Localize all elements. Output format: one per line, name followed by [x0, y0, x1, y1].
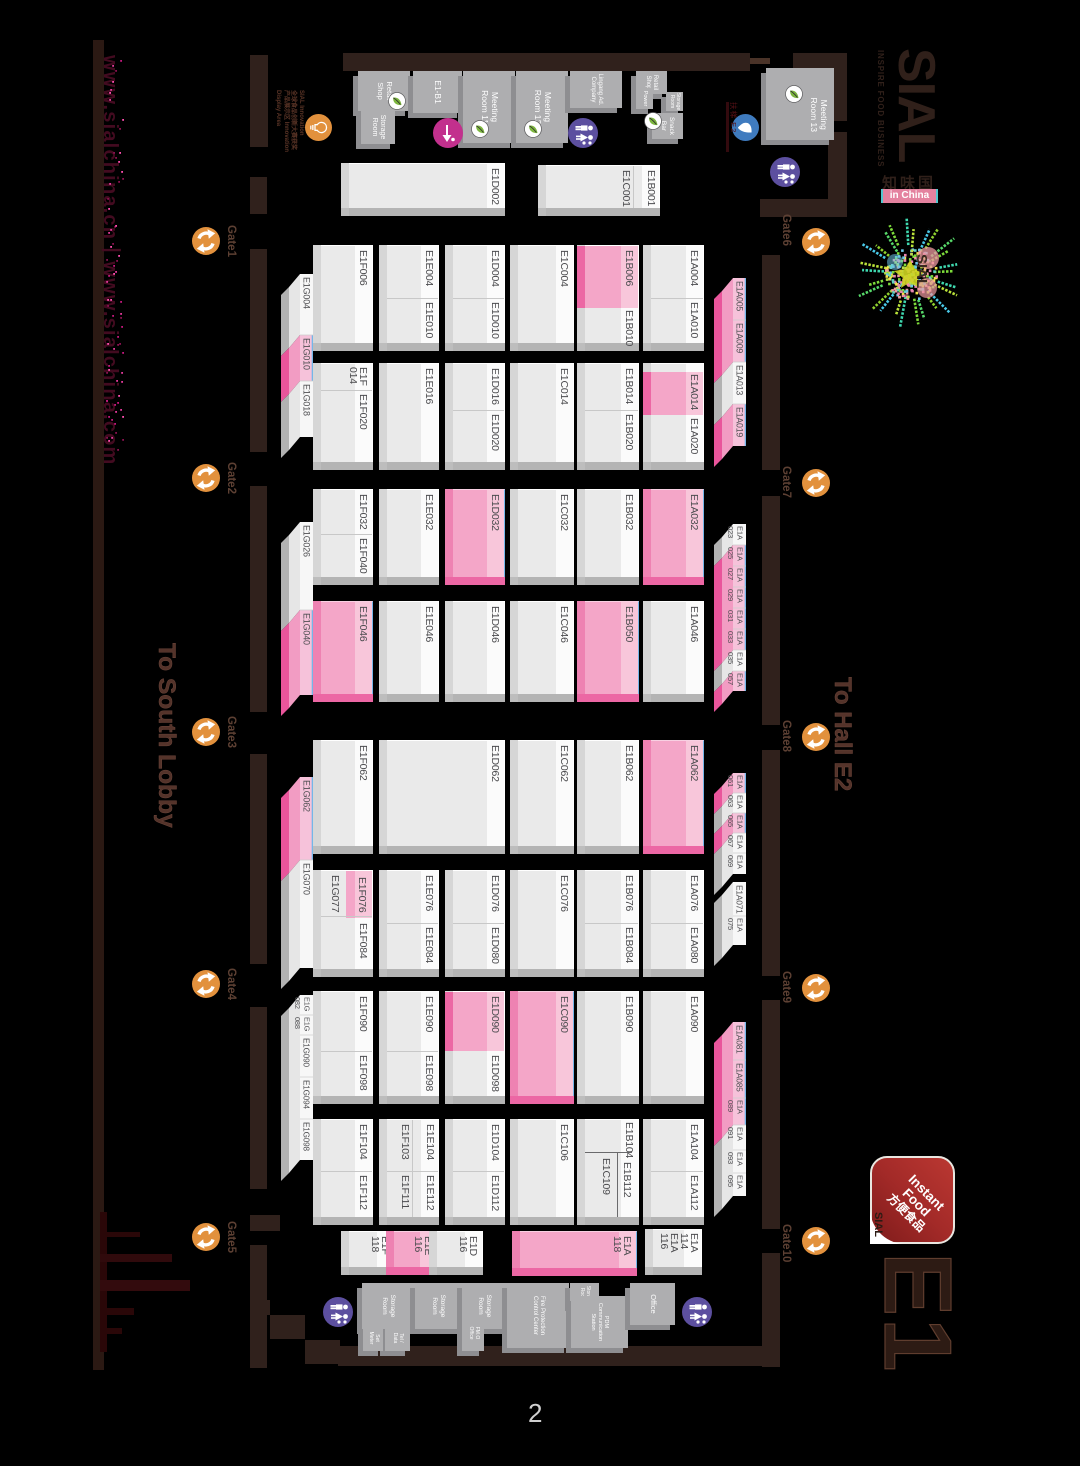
- svg-text:E1A: E1A: [736, 673, 745, 688]
- svg-text:E1A: E1A: [736, 1175, 745, 1190]
- svg-text:E1A019: E1A019: [735, 407, 745, 437]
- svg-text:029: 029: [726, 589, 735, 601]
- svg-text:E1A: E1A: [736, 815, 745, 830]
- svg-text:E1G010: E1G010: [302, 338, 312, 370]
- svg-text:E1A: E1A: [736, 568, 745, 583]
- svg-text:035: 035: [726, 652, 735, 664]
- svg-text:E1A: E1A: [736, 918, 745, 933]
- svg-text:065: 065: [726, 815, 735, 827]
- svg-text:E1A: E1A: [736, 1152, 745, 1167]
- svg-text:E1G: E1G: [303, 997, 312, 1012]
- svg-text:E1G: E1G: [303, 1017, 312, 1032]
- svg-text:E1A: E1A: [736, 631, 745, 646]
- svg-text:E1G040: E1G040: [302, 613, 312, 645]
- svg-text:E1A: E1A: [736, 775, 745, 790]
- svg-text:E1A013: E1A013: [735, 365, 745, 395]
- svg-text:E1A009: E1A009: [735, 323, 745, 353]
- svg-text:027: 027: [726, 568, 735, 580]
- svg-text:023: 023: [726, 526, 735, 538]
- svg-text:089: 089: [726, 1100, 735, 1112]
- svg-text:067: 067: [726, 835, 735, 847]
- svg-text:063: 063: [726, 795, 735, 807]
- svg-text:093: 093: [726, 1152, 735, 1164]
- svg-text:SIAL: SIAL: [872, 1212, 884, 1237]
- svg-text:091: 091: [726, 1127, 735, 1139]
- svg-text:E1A: E1A: [736, 1100, 745, 1115]
- svg-text:E1G004: E1G004: [302, 277, 312, 309]
- svg-text:SIAL: SIAL: [913, 254, 930, 288]
- svg-text:033: 033: [726, 631, 735, 643]
- svg-text:025: 025: [726, 547, 735, 559]
- svg-text:E1A: E1A: [736, 1127, 745, 1142]
- svg-text:E1A: E1A: [736, 547, 745, 562]
- svg-text:095: 095: [726, 1175, 735, 1187]
- svg-text:075: 075: [726, 918, 735, 930]
- svg-text:E1A071: E1A071: [735, 885, 745, 914]
- svg-text:057: 057: [726, 673, 735, 685]
- svg-text:061: 061: [726, 775, 735, 787]
- svg-text:031: 031: [726, 610, 735, 622]
- svg-text:E1G026: E1G026: [302, 525, 312, 557]
- svg-text:E1A005: E1A005: [735, 281, 745, 311]
- svg-text:E1G098: E1G098: [302, 1122, 311, 1151]
- svg-text:E1A085: E1A085: [735, 1063, 745, 1092]
- svg-text:E1A: E1A: [736, 526, 745, 541]
- svg-text:082: 082: [293, 997, 302, 1009]
- svg-text:E1A: E1A: [736, 652, 745, 667]
- svg-text:E1A: E1A: [736, 610, 745, 625]
- svg-text:E1G018: E1G018: [302, 384, 312, 416]
- svg-text:E1A: E1A: [736, 589, 745, 604]
- svg-text:E1A: E1A: [736, 835, 745, 850]
- svg-text:088: 088: [293, 1017, 302, 1029]
- svg-text:069: 069: [726, 855, 735, 867]
- svg-text:E1A: E1A: [736, 855, 745, 870]
- svg-text:E1A081: E1A081: [735, 1025, 745, 1054]
- svg-text:E1G094: E1G094: [302, 1080, 311, 1109]
- svg-text:E1G070: E1G070: [302, 863, 312, 895]
- svg-text:E1G090: E1G090: [302, 1038, 311, 1067]
- svg-text:E1A: E1A: [736, 795, 745, 810]
- svg-text:E1G062: E1G062: [302, 780, 312, 812]
